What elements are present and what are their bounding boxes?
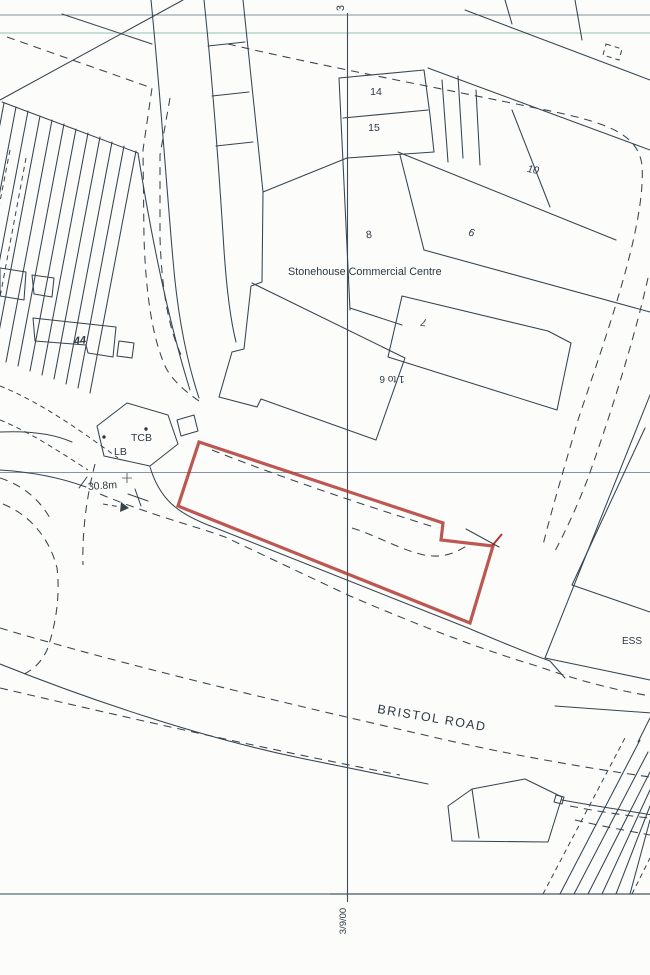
plot-label-7: 7: [419, 315, 428, 328]
house-label-44: 44: [72, 334, 86, 347]
plot-label-1to6: 1 to 6: [379, 373, 404, 384]
plot-label-15: 15: [368, 122, 380, 134]
site-dashed-detail: [100, 450, 650, 696]
road-dashed-north-east: [228, 44, 648, 553]
grid-label-top: 3: [335, 5, 347, 11]
spot-height-label: 30.8m: [87, 479, 117, 493]
road-name-label: BRISTOL ROAD: [376, 702, 487, 734]
site-plan-map: 3 3/9/00 14 15 10 8 9 7 1 to 6 44 Stoneh…: [0, 0, 650, 975]
buildings-south-east: [448, 718, 650, 894]
tcb-label: TCB: [131, 432, 152, 444]
arrow-head-icon: [120, 502, 129, 512]
terrace-houses: [0, 102, 190, 470]
plot-label-14: 14: [370, 86, 382, 98]
grid-label-bottom: 3/9/00: [338, 908, 349, 934]
ess-label: ESS: [622, 636, 642, 647]
junction-tcb-lb: [0, 403, 198, 676]
site-plan-page: 3 3/9/00 14 15 10 8 9 7 1 to 6 44 Stoneh…: [0, 0, 650, 975]
commercial-centre-buildings: [208, 0, 650, 440]
plot-label-8: 8: [365, 229, 373, 242]
plot-label-9: 9: [468, 225, 476, 238]
lb-label: LB: [114, 446, 127, 458]
centre-name-label: Stonehouse Commercial Centre: [288, 266, 442, 278]
sheet-tint-lines: [0, 15, 650, 894]
bristol-road-lines: [0, 467, 650, 835]
